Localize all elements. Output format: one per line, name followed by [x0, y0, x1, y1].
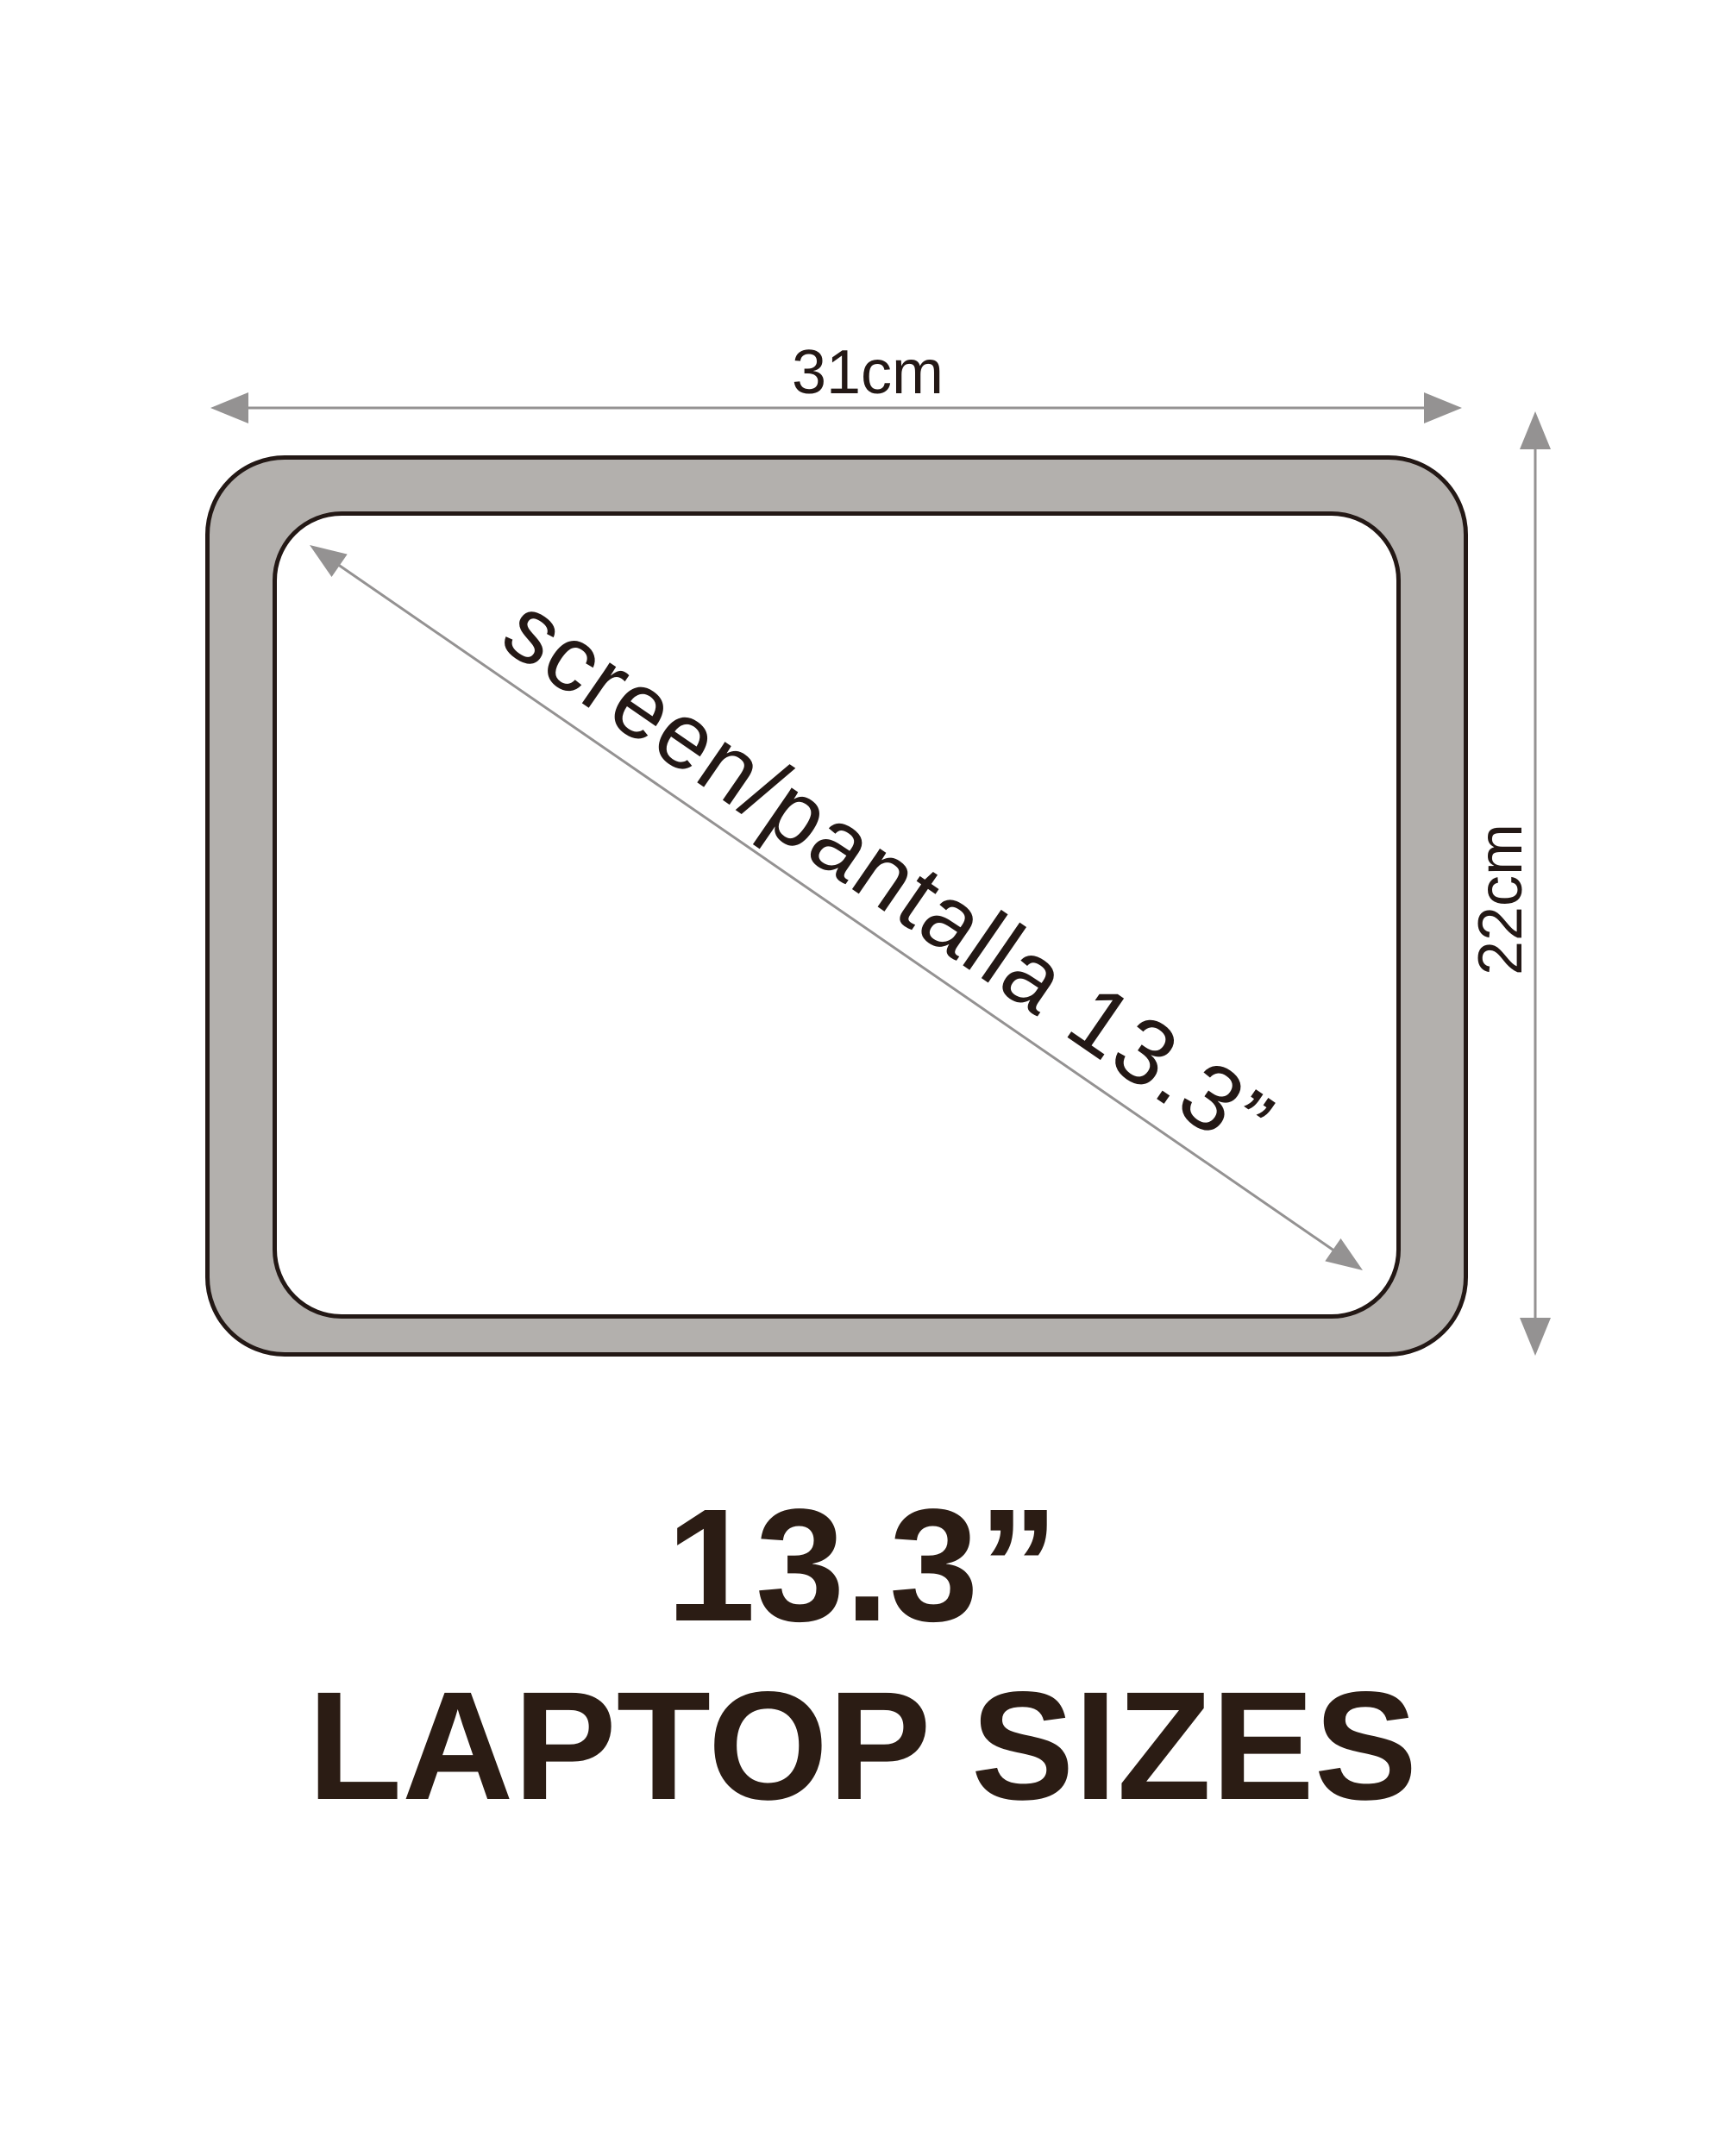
laptop-size-diagram: 31cm 22cm screen/pantalla 13.3” 13.3” LA…	[0, 0, 1725, 2156]
width-arrow-head-right	[1424, 392, 1462, 423]
caption-block: 13.3” LAPTOP SIZES	[0, 1476, 1725, 1835]
diagonal-arrow-head-topleft	[310, 545, 348, 577]
caption-title: LAPTOP SIZES	[0, 1656, 1725, 1835]
height-arrow-head-bottom	[1520, 1318, 1551, 1356]
height-arrow-head-top	[1520, 411, 1551, 449]
width-dimension-label: 31cm	[652, 338, 1083, 407]
width-arrow-head-left	[210, 392, 248, 423]
diagonal-arrow-head-bottomright	[1325, 1238, 1363, 1270]
caption-size: 13.3”	[0, 1476, 1725, 1656]
height-dimension-label: 22cm	[1466, 727, 1535, 1072]
